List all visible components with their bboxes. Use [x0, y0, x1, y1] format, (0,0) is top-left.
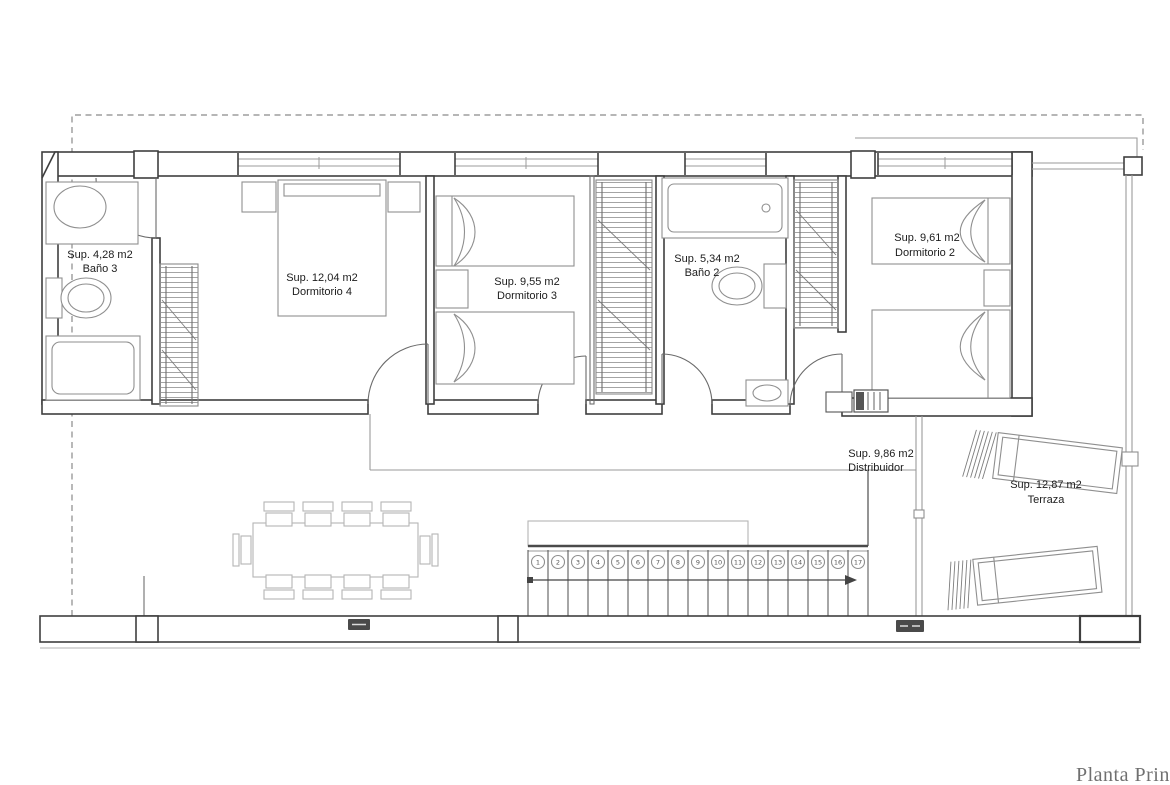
- partition-marker: [914, 510, 924, 518]
- column: [136, 616, 158, 642]
- label-bano3-area: Sup. 4,28 m2: [67, 249, 132, 261]
- toilet: [712, 264, 786, 308]
- wall-end-segment: [1080, 616, 1140, 642]
- label-distribuidor-area: Sup. 9,86 m2: [848, 448, 913, 460]
- step-number: 8: [676, 559, 680, 567]
- wardrobe-dormitorio4: [160, 264, 198, 406]
- step-number: 1: [536, 559, 540, 567]
- wall-segment: [586, 400, 662, 414]
- step-number: 4: [596, 559, 600, 567]
- wardrobe-dormitorio3: [596, 180, 652, 394]
- bathtub: [46, 336, 140, 400]
- nightstand: [388, 182, 420, 212]
- nightstand: [984, 270, 1010, 306]
- sink: [746, 380, 788, 406]
- floor-opening-edge: [528, 521, 748, 546]
- single-bed: [436, 312, 574, 384]
- label-distribuidor-name: Distribuidor: [848, 462, 904, 474]
- label-dormitorio4-name: Dormitorio 4: [292, 286, 352, 298]
- bano2-fixtures: [662, 178, 788, 406]
- column: [851, 151, 875, 178]
- column: [498, 616, 518, 642]
- door-bano2: [662, 354, 712, 404]
- step-number: 15: [814, 559, 822, 567]
- label-bano2-area: Sup. 5,34 m2: [674, 253, 739, 265]
- nightstand: [242, 182, 276, 212]
- plan-title: Planta Prin: [1076, 764, 1170, 785]
- window-dormitorio2: [878, 153, 1012, 175]
- step-number: 6: [636, 559, 640, 567]
- step-number: 13: [774, 559, 782, 567]
- label-dormitorio3-area: Sup. 9,55 m2: [494, 276, 559, 288]
- bano3-fixtures: [46, 182, 140, 400]
- window-dormitorio4: [238, 153, 400, 175]
- wall-segment: [428, 400, 538, 414]
- window-dormitorio3: [455, 153, 598, 175]
- sink-vanity: [46, 182, 138, 244]
- stair-step-numbers: 1 2 3 4 5 6 7 8 9 10 11 12 13 14 15 16 1…: [532, 556, 865, 569]
- wardrobe-dormitorio2: [794, 180, 838, 328]
- label-bano2-name: Baño 2: [685, 267, 720, 279]
- step-number: 3: [576, 559, 580, 567]
- label-dormitorio3-name: Dormitorio 3: [497, 290, 557, 302]
- step-number: 2: [556, 559, 560, 567]
- dining-chairs-top: [264, 502, 411, 526]
- label-dormitorio4-area: Sup. 12,04 m2: [286, 272, 358, 284]
- step-number: 11: [734, 559, 742, 567]
- floor-plan-page: 1 2 3 4 5 6 7 8 9 10 11 12 13 14 15 16 1…: [0, 0, 1170, 785]
- single-bed: [436, 196, 574, 266]
- step-number: 16: [834, 559, 842, 567]
- wall-marker: [896, 620, 924, 632]
- dining-chairs-bottom: [264, 575, 411, 599]
- dormitorio2-furniture: [872, 198, 1010, 398]
- step-number: 12: [754, 559, 762, 567]
- step-number: 17: [854, 559, 862, 567]
- toilet: [46, 278, 111, 318]
- step-number: 9: [696, 559, 700, 567]
- label-terraza-area: Sup. 12,87 m2: [1010, 479, 1082, 491]
- step-number: 5: [616, 559, 620, 567]
- radiator-unit: [826, 390, 888, 412]
- step-number: 7: [656, 559, 660, 567]
- column: [134, 151, 158, 178]
- bottom-wall: [40, 616, 1140, 648]
- sun-lounger: [943, 546, 1102, 610]
- bathtub: [662, 178, 788, 238]
- nightstand: [436, 270, 468, 308]
- label-dormitorio2-name: Dormitorio 2: [895, 247, 955, 259]
- step-number: 10: [714, 559, 722, 567]
- window-bano2: [685, 153, 766, 175]
- door-dormitorio4: [368, 344, 428, 404]
- label-terraza-name: Terraza: [1028, 494, 1066, 506]
- label-dormitorio2-area: Sup. 9,61 m2: [894, 232, 959, 244]
- label-bano3-name: Baño 3: [83, 263, 118, 275]
- dining-table: [253, 523, 418, 577]
- wall-segment: [42, 400, 368, 414]
- floor-plan-drawing: 1 2 3 4 5 6 7 8 9 10 11 12 13 14 15 16 1…: [0, 0, 1170, 785]
- step-number: 14: [794, 559, 802, 567]
- single-bed: [872, 310, 1010, 398]
- dining-set-below: [144, 502, 438, 616]
- wall-marker: [348, 619, 370, 630]
- railing-post: [1124, 157, 1142, 175]
- staircase: 1 2 3 4 5 6 7 8 9 10 11 12 13 14 15 16 1…: [527, 546, 868, 616]
- railing-marker: [1122, 452, 1138, 466]
